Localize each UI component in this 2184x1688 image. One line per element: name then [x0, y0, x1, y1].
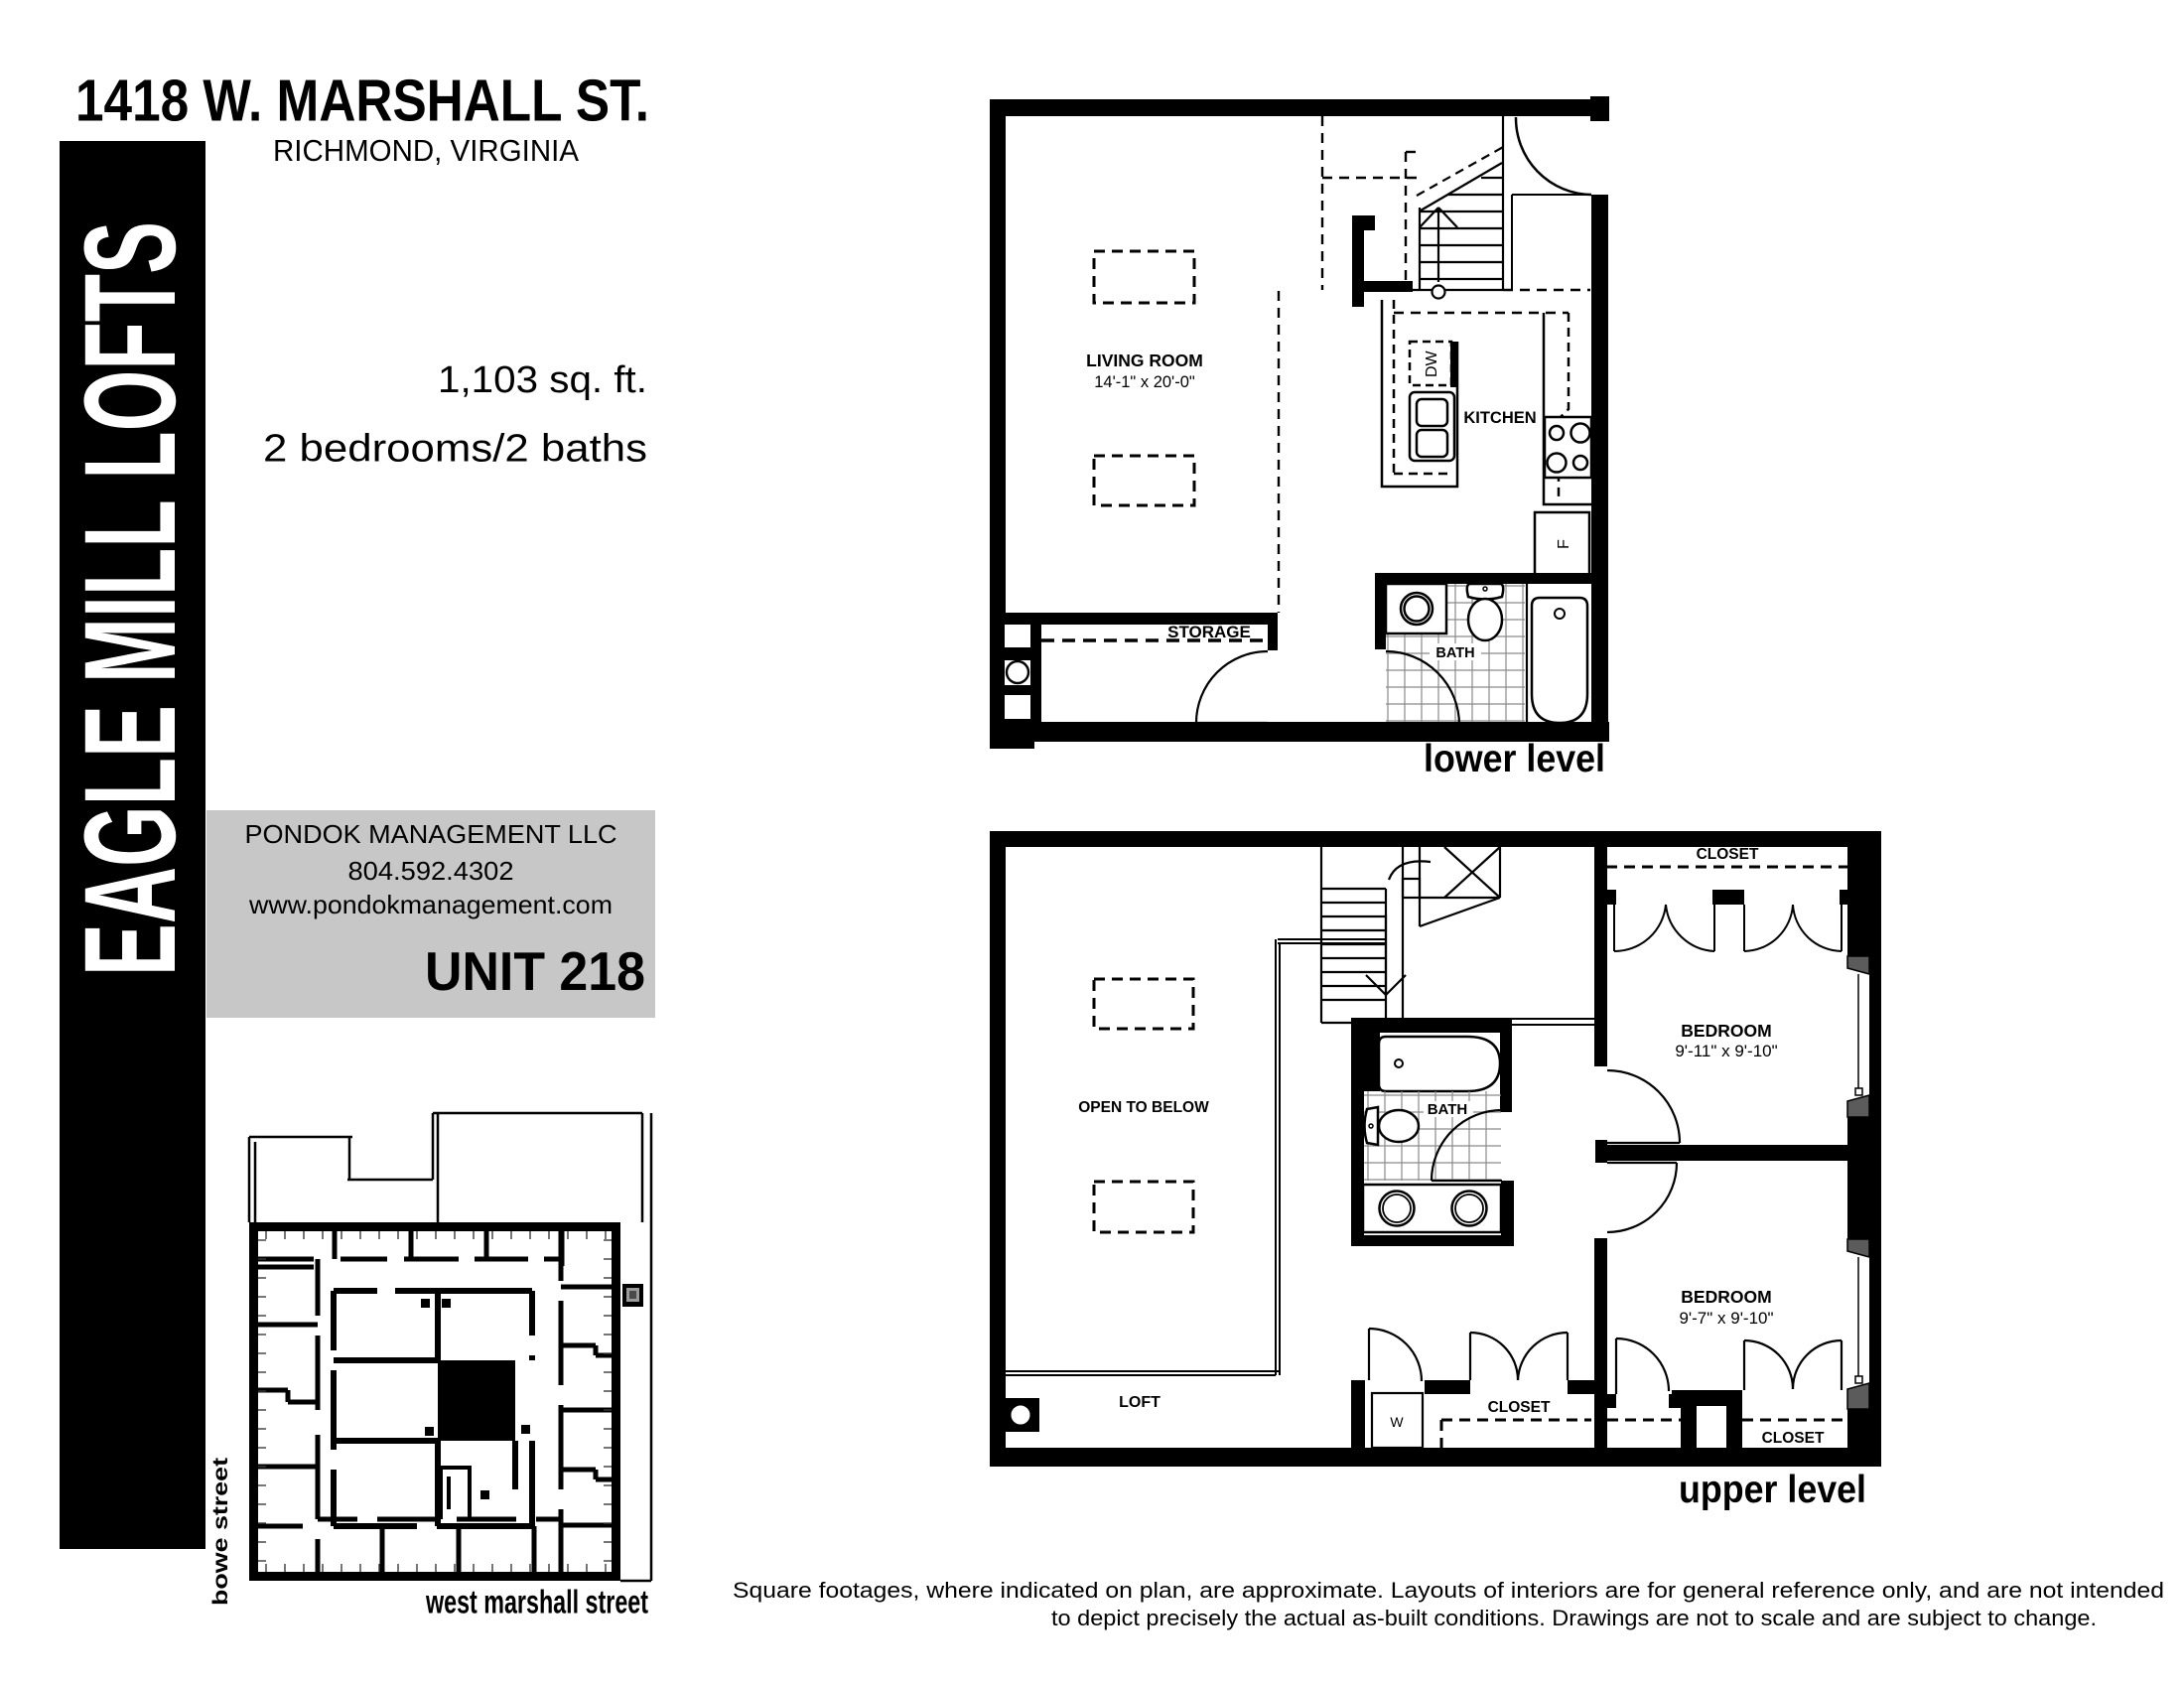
svg-text:1,103 sq. ft.: 1,103 sq. ft.	[438, 359, 647, 401]
svg-text:804.592.4302: 804.592.4302	[348, 856, 514, 886]
svg-text:BEDROOM: BEDROOM	[1681, 1021, 1771, 1041]
svg-text:BATH: BATH	[1428, 1101, 1468, 1118]
svg-text:DW: DW	[1424, 350, 1440, 377]
svg-text:to depict precisely the actual: to depict precisely the actual as-built …	[1051, 1606, 2097, 1630]
svg-text:EAGLE MILL LOFTS: EAGLE MILL LOFTS	[58, 221, 203, 976]
svg-text:OPEN TO BELOW: OPEN TO BELOW	[1078, 1099, 1209, 1116]
svg-text:CLOSET: CLOSET	[1488, 1399, 1551, 1416]
svg-text:CLOSET: CLOSET	[1762, 1430, 1825, 1447]
svg-text:CLOSET: CLOSET	[1697, 846, 1759, 863]
svg-text:BEDROOM: BEDROOM	[1681, 1287, 1771, 1307]
svg-text:lower level: lower level	[1424, 738, 1605, 780]
svg-text:STORAGE: STORAGE	[1167, 623, 1251, 641]
svg-text:9'-11" x 9'-10": 9'-11" x 9'-10"	[1675, 1042, 1777, 1060]
svg-text:upper level: upper level	[1679, 1469, 1866, 1511]
svg-text:LOFT: LOFT	[1119, 1394, 1160, 1411]
svg-text:RICHMOND, VIRGINIA: RICHMOND, VIRGINIA	[273, 133, 579, 168]
svg-text:2 bedrooms/2 baths: 2 bedrooms/2 baths	[263, 428, 647, 471]
svg-text:KITCHEN: KITCHEN	[1463, 409, 1536, 427]
svg-text:Square footages, where indicat: Square footages, where indicated on plan…	[733, 1578, 2164, 1603]
svg-text:W: W	[1390, 1414, 1404, 1430]
svg-text:PONDOK MANAGEMENT LLC: PONDOK MANAGEMENT LLC	[245, 819, 617, 849]
svg-text:BATH: BATH	[1435, 645, 1474, 661]
svg-text:www.pondokmanagement.com: www.pondokmanagement.com	[248, 890, 613, 919]
svg-text:14'-1" x 20'-0": 14'-1" x 20'-0"	[1094, 373, 1195, 391]
svg-text:bowe street: bowe street	[209, 1458, 232, 1606]
svg-text:9'-7" x 9'-10": 9'-7" x 9'-10"	[1679, 1309, 1773, 1328]
svg-text:F: F	[1556, 539, 1572, 549]
svg-text:LIVING ROOM: LIVING ROOM	[1086, 351, 1203, 370]
svg-text:west marshall street: west marshall street	[425, 1584, 648, 1620]
svg-text:UNIT 218: UNIT 218	[425, 940, 645, 1002]
svg-text:1418 W. MARSHALL ST.: 1418 W. MARSHALL ST.	[75, 69, 649, 134]
